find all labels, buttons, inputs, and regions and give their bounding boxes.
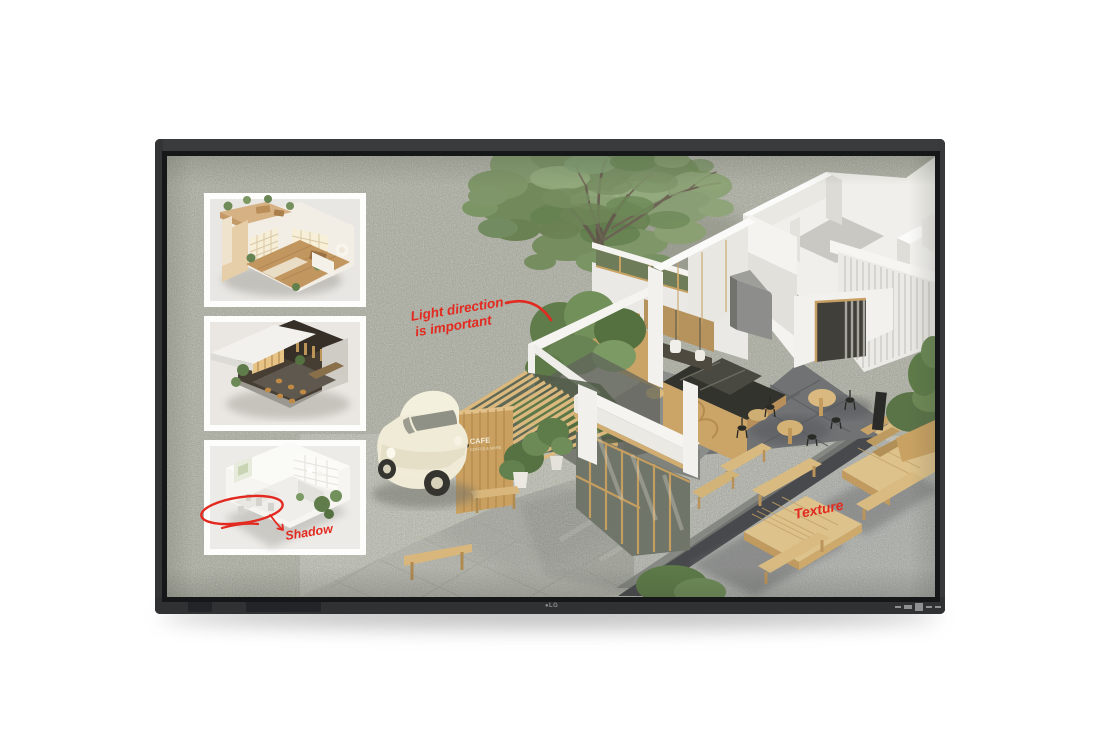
svg-text:CAFE: CAFE: [470, 436, 491, 446]
